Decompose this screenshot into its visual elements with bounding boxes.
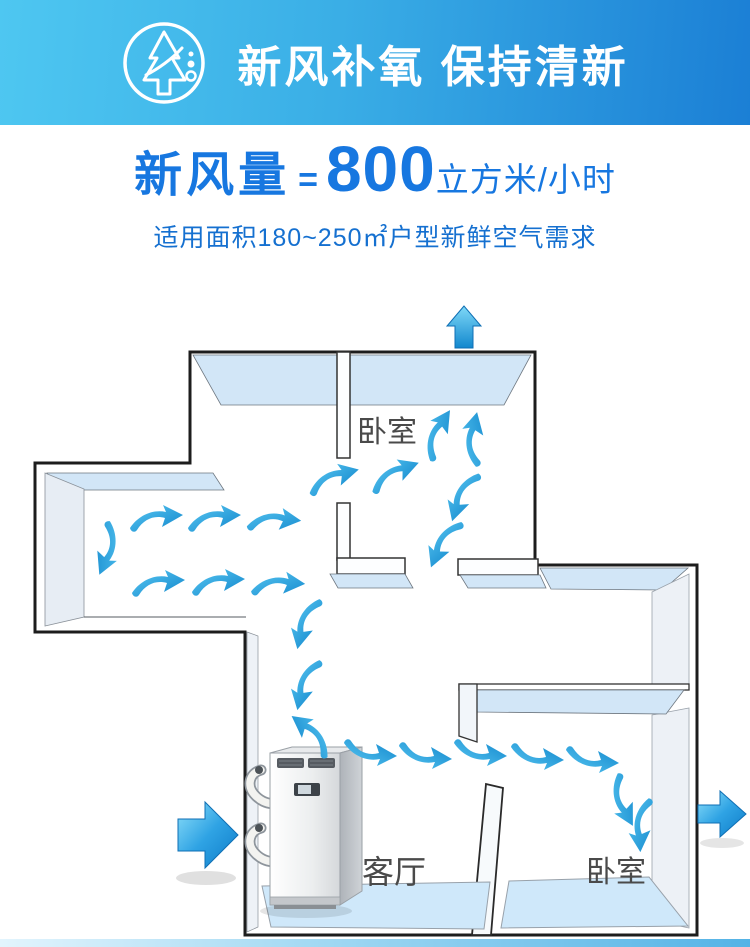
floorplan: 卧室 客厅 卧室 [0,287,750,939]
fresh-air-tree-icon [121,18,211,108]
headline-equals: = [298,161,318,200]
promo-page: 新风补氧 保持清新 新风量 = 800 立方米/小时 适用面积180~250㎡户… [0,0,750,947]
room-label-bedroom-bottom: 卧室 [586,856,646,889]
room-label-bedroom-top: 卧室 [357,416,417,449]
header-banner: 新风补氧 保持清新 [0,0,750,125]
exhaust-up-arrow [447,306,481,348]
headline: 新风量 = 800 立方米/小时 [0,132,750,202]
page-title: 新风补氧 保持清新 [237,31,628,95]
subtitle: 适用面积180~250㎡户型新鲜空气需求 [0,218,750,254]
intake-left-arrow [176,802,238,885]
unit-display [294,783,320,796]
headline-unit: 立方米/小时 [436,153,616,201]
headline-label: 新风量 [134,135,290,205]
outlet-right-arrow [698,791,746,848]
room-label-living: 客厅 [362,854,426,890]
bottom-gradient-bar [0,939,750,947]
headline-value: 800 [326,132,436,206]
